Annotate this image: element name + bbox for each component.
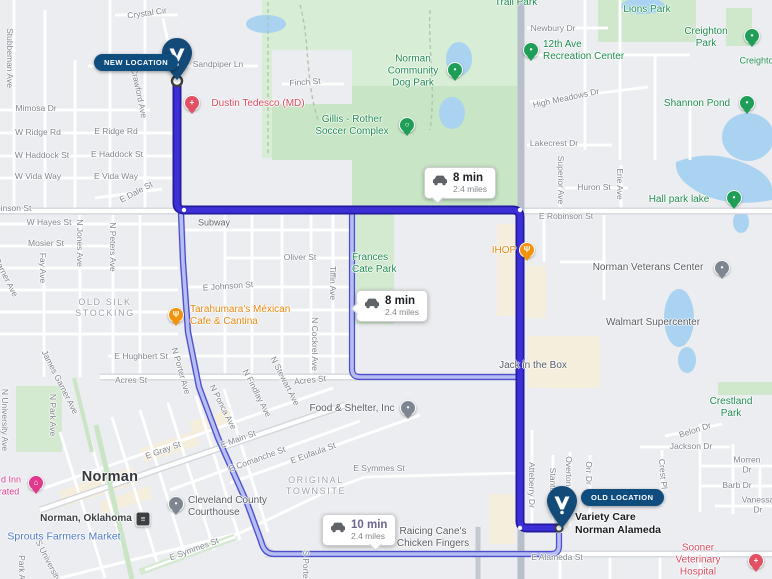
shelter-icon-glyph: • xyxy=(407,404,410,412)
dustin-tedesco-md-label[interactable]: Dustin Tedesco (MD) xyxy=(211,98,304,110)
train-station-icon-glyph: ≡ xyxy=(141,515,146,523)
shannon-pond-icon[interactable]: • xyxy=(739,95,755,111)
new-location-pill: NEW LOCATION xyxy=(94,54,178,71)
newbury-dr-label: Newbury Dr xyxy=(531,23,576,33)
crest-pl-label: Crest Pl xyxy=(657,458,670,489)
high-meadows-dr-label: High Meadows Dr xyxy=(532,86,600,110)
finch-st-label: Finch St xyxy=(289,76,321,89)
dog-park-icon[interactable]: • xyxy=(447,62,463,78)
e-vida-way-label: E Vida Way xyxy=(94,171,138,181)
rated-label[interactable]: rated xyxy=(0,487,19,498)
shannon-pond-icon-glyph: • xyxy=(746,99,749,107)
car-icon xyxy=(431,174,449,187)
park-ave-label: Park Ave xyxy=(17,555,27,579)
creighton-park-icon-glyph: • xyxy=(751,32,754,40)
raicing-cane-s-chicken-fingers-label[interactable]: Raicing Cane's Chicken Fingers xyxy=(397,526,469,550)
courthouse-icon-glyph: • xyxy=(175,500,178,508)
norman-veterans-center-label[interactable]: Norman Veterans Center xyxy=(593,262,704,274)
d-inn-label[interactable]: d Inn xyxy=(1,475,21,486)
12th-ave-recreation-center-label[interactable]: 12th Ave Recreation Center xyxy=(543,39,624,63)
e-alameda-st-label: E Alameda St xyxy=(531,552,583,562)
old-location-marker[interactable] xyxy=(547,486,577,530)
e-robinson-st-label: E Robinson St xyxy=(539,211,593,221)
tarahumara-s-m-xican-cafe-cantina-label[interactable]: Tarahumara's Méxican Cafe & Cantina xyxy=(190,304,290,328)
creighton-park-label[interactable]: Creighton Park xyxy=(673,26,739,50)
shannon-pond-label[interactable]: Shannon Pond xyxy=(664,98,730,110)
soccer-icon[interactable]: ○ xyxy=(399,117,415,133)
doctor-icon[interactable]: + xyxy=(184,95,200,111)
e-symmes-st-label: E Symmes St xyxy=(168,535,220,562)
crawford-ave-label: Crawford Ave xyxy=(129,67,150,119)
vanessa-dr-label: Vanessa Dr xyxy=(742,495,772,516)
creighton-label[interactable]: Creighton xyxy=(739,56,772,67)
e-johnson-st-label: E Johnson St xyxy=(202,279,253,293)
w-haddock-st-label: W Haddock St xyxy=(15,150,69,160)
mosier-st-label: Mosier St xyxy=(28,238,64,248)
n-park-ave-label: N Park Ave xyxy=(48,394,58,436)
acres-st-label: Acres St xyxy=(115,375,147,385)
w-robinson-st-label: W Robinson St xyxy=(0,203,31,213)
route-badge-alt-2[interactable]: 10 min 2.4 miles xyxy=(322,514,396,546)
restaurant-icon-glyph: Ψ xyxy=(524,246,530,254)
e-dale-st-label: E Dale St xyxy=(118,179,155,205)
old-silk-stocking-label: OLD SILK STOCKING xyxy=(75,297,135,319)
cleveland-county-courthouse-label[interactable]: Cleveland County Courthouse xyxy=(188,495,267,519)
superior-ave-label: Superior Ave xyxy=(556,156,566,205)
barb-dr-label: Barb Dr xyxy=(722,480,751,490)
acres-st-label: Acres St xyxy=(293,373,326,387)
hall-park-lake-icon[interactable]: • xyxy=(726,190,742,206)
route-badge-main[interactable]: 8 min 2.4 miles xyxy=(424,167,496,199)
e-hughbert-st-label: E Hughbert St xyxy=(114,351,167,361)
norman-community-dog-park-label[interactable]: Norman Community Dog Park xyxy=(388,54,439,91)
walmart-supercenter-label[interactable]: Walmart Supercenter xyxy=(606,317,700,329)
e-comanche-st-label: E Comanche St xyxy=(227,444,286,474)
original-townsite-label: ORIGINAL TOWNSITE xyxy=(286,475,346,497)
stubbeman-ave-label: Stubbeman Ave xyxy=(5,28,15,88)
subway-label[interactable]: Subway xyxy=(198,218,230,229)
car-icon xyxy=(329,521,347,534)
oliver-st-label: Oliver St xyxy=(284,252,317,262)
doctor-icon-glyph: + xyxy=(190,99,195,107)
e-ridge-rd-label: E Ridge Rd xyxy=(94,126,137,136)
n-ponca-ave-label: N Ponca Ave xyxy=(207,383,238,431)
huron-st-label: Huron St xyxy=(577,182,611,192)
erie-ave-label: Erie Ave xyxy=(615,168,625,200)
tiffin-ave-label: Tiffin Ave xyxy=(328,266,338,300)
route-badge-alt-1[interactable]: 8 min 2.4 miles xyxy=(356,290,428,322)
crystal-cir-label: Crystal Cir xyxy=(127,5,168,21)
hotel-icon[interactable]: ⌂ xyxy=(28,475,44,491)
w-ridge-rd-label: W Ridge Rd xyxy=(15,127,61,137)
atteberry-dr-label: Atteberry Dr xyxy=(527,462,537,508)
w-vida-way-label: W Vida Way xyxy=(15,171,61,181)
food-shelter-inc-label[interactable]: Food & Shelter, Inc xyxy=(309,403,394,415)
e-main-st-label: E Main St xyxy=(219,428,257,450)
variety-care-norman-alameda-label[interactable]: Variety Care Norman Alameda xyxy=(575,511,661,537)
frances-cate-park-label[interactable]: Frances Cate Park xyxy=(352,252,396,276)
n-university-ave-label: N University Ave xyxy=(0,389,10,451)
e-gray-st-label: E Gray St xyxy=(144,439,182,461)
lakecrest-dr-label: Lakecrest Dr xyxy=(530,138,578,148)
jack-in-the-box-label[interactable]: Jack in the Box xyxy=(499,360,567,372)
jackson-dr-label: Jackson Dr xyxy=(670,441,713,451)
train-station-icon[interactable]: ≡ xyxy=(136,512,151,527)
recreation-center-icon[interactable]: • xyxy=(523,42,539,58)
orr-dr-label: Orr Dr xyxy=(584,461,594,485)
n-jones-ave-label: N Jones Ave xyxy=(75,219,85,267)
route-distance: 2.4 miles xyxy=(453,185,487,194)
car-icon xyxy=(363,297,381,310)
courthouse-icon[interactable]: • xyxy=(168,496,184,512)
n-cockrel-ave-label: N Cockrel Ave xyxy=(310,317,320,371)
old-location-pill: OLD LOCATION xyxy=(581,489,664,506)
creighton-park-icon[interactable]: • xyxy=(744,28,760,44)
e-eufaula-st-label: E Eufaula St xyxy=(289,440,337,466)
james-garner-ave-label: James Garner Ave xyxy=(39,348,80,415)
e-symmes-st-label: E Symmes St xyxy=(353,463,404,473)
restaurant-icon[interactable]: Ψ xyxy=(168,307,184,323)
belon-dr-label: Belon Dr xyxy=(678,420,713,440)
fay-ave-label: Fay Ave xyxy=(38,253,48,284)
trail-park-label[interactable]: Trail Park xyxy=(495,0,537,9)
morren-dr-label: Morren Dr xyxy=(734,455,761,476)
map[interactable]: Stubbeman AveCrystal CirFalcon CtSandpip… xyxy=(0,0,772,579)
hotel-icon-glyph: ⌂ xyxy=(34,479,39,487)
s-university-ave-label: S University Ave xyxy=(33,538,70,579)
veterinary-icon[interactable]: + xyxy=(748,553,764,569)
w-hayes-st-label: W Hayes St xyxy=(27,217,72,227)
hall-park-lake-label[interactable]: Hall park lake xyxy=(649,194,710,206)
soccer-icon-glyph: ○ xyxy=(405,121,410,129)
ihop-label[interactable]: IHOP xyxy=(492,245,516,257)
restaurant-icon[interactable]: Ψ xyxy=(519,242,535,258)
sprouts-farmers-market-label[interactable]: Sprouts Farmers Market xyxy=(7,531,120,544)
restaurant-icon-glyph: Ψ xyxy=(173,311,179,319)
crestland-park-label[interactable]: Crestland Park xyxy=(710,396,753,420)
route-distance: 2.4 miles xyxy=(351,532,387,541)
veterans-center-icon[interactable]: • xyxy=(714,260,730,276)
lions-park-label[interactable]: Lions Park xyxy=(623,4,670,16)
gillis-rother-soccer-complex-label[interactable]: Gillis - Rother Soccer Complex xyxy=(315,114,388,138)
s-porter-ave-label: S Porter Ave xyxy=(301,550,311,579)
sandpiper-ln-label: Sandpiper Ln xyxy=(193,59,244,69)
dog-park-icon-glyph: • xyxy=(454,66,457,74)
veterinary-icon-glyph: + xyxy=(754,557,759,565)
shelter-icon[interactable]: • xyxy=(400,400,416,416)
sooner-veterinary-hospital-label[interactable]: Sooner Veterinary Hospital xyxy=(661,543,735,579)
e-haddock-st-label: E Haddock St xyxy=(91,149,143,159)
norman-label: Norman xyxy=(82,469,139,487)
norman-oklahoma-label[interactable]: Norman, Oklahoma xyxy=(40,513,132,525)
mimosa-dr-label: Mimosa Dr xyxy=(15,103,56,113)
hall-park-lake-icon-glyph: • xyxy=(733,194,736,202)
n-porter-ave-label: N Porter Ave xyxy=(169,346,192,395)
n-findlay-ave-label: N Findlay Ave xyxy=(241,367,274,418)
n-peters-ave-label: N Peters Ave xyxy=(108,222,118,271)
veterans-center-icon-glyph: • xyxy=(721,264,724,272)
garner-ave-label: Garner Ave xyxy=(0,256,20,299)
route-distance: 2.4 miles xyxy=(385,308,419,317)
recreation-center-icon-glyph: • xyxy=(530,46,533,54)
